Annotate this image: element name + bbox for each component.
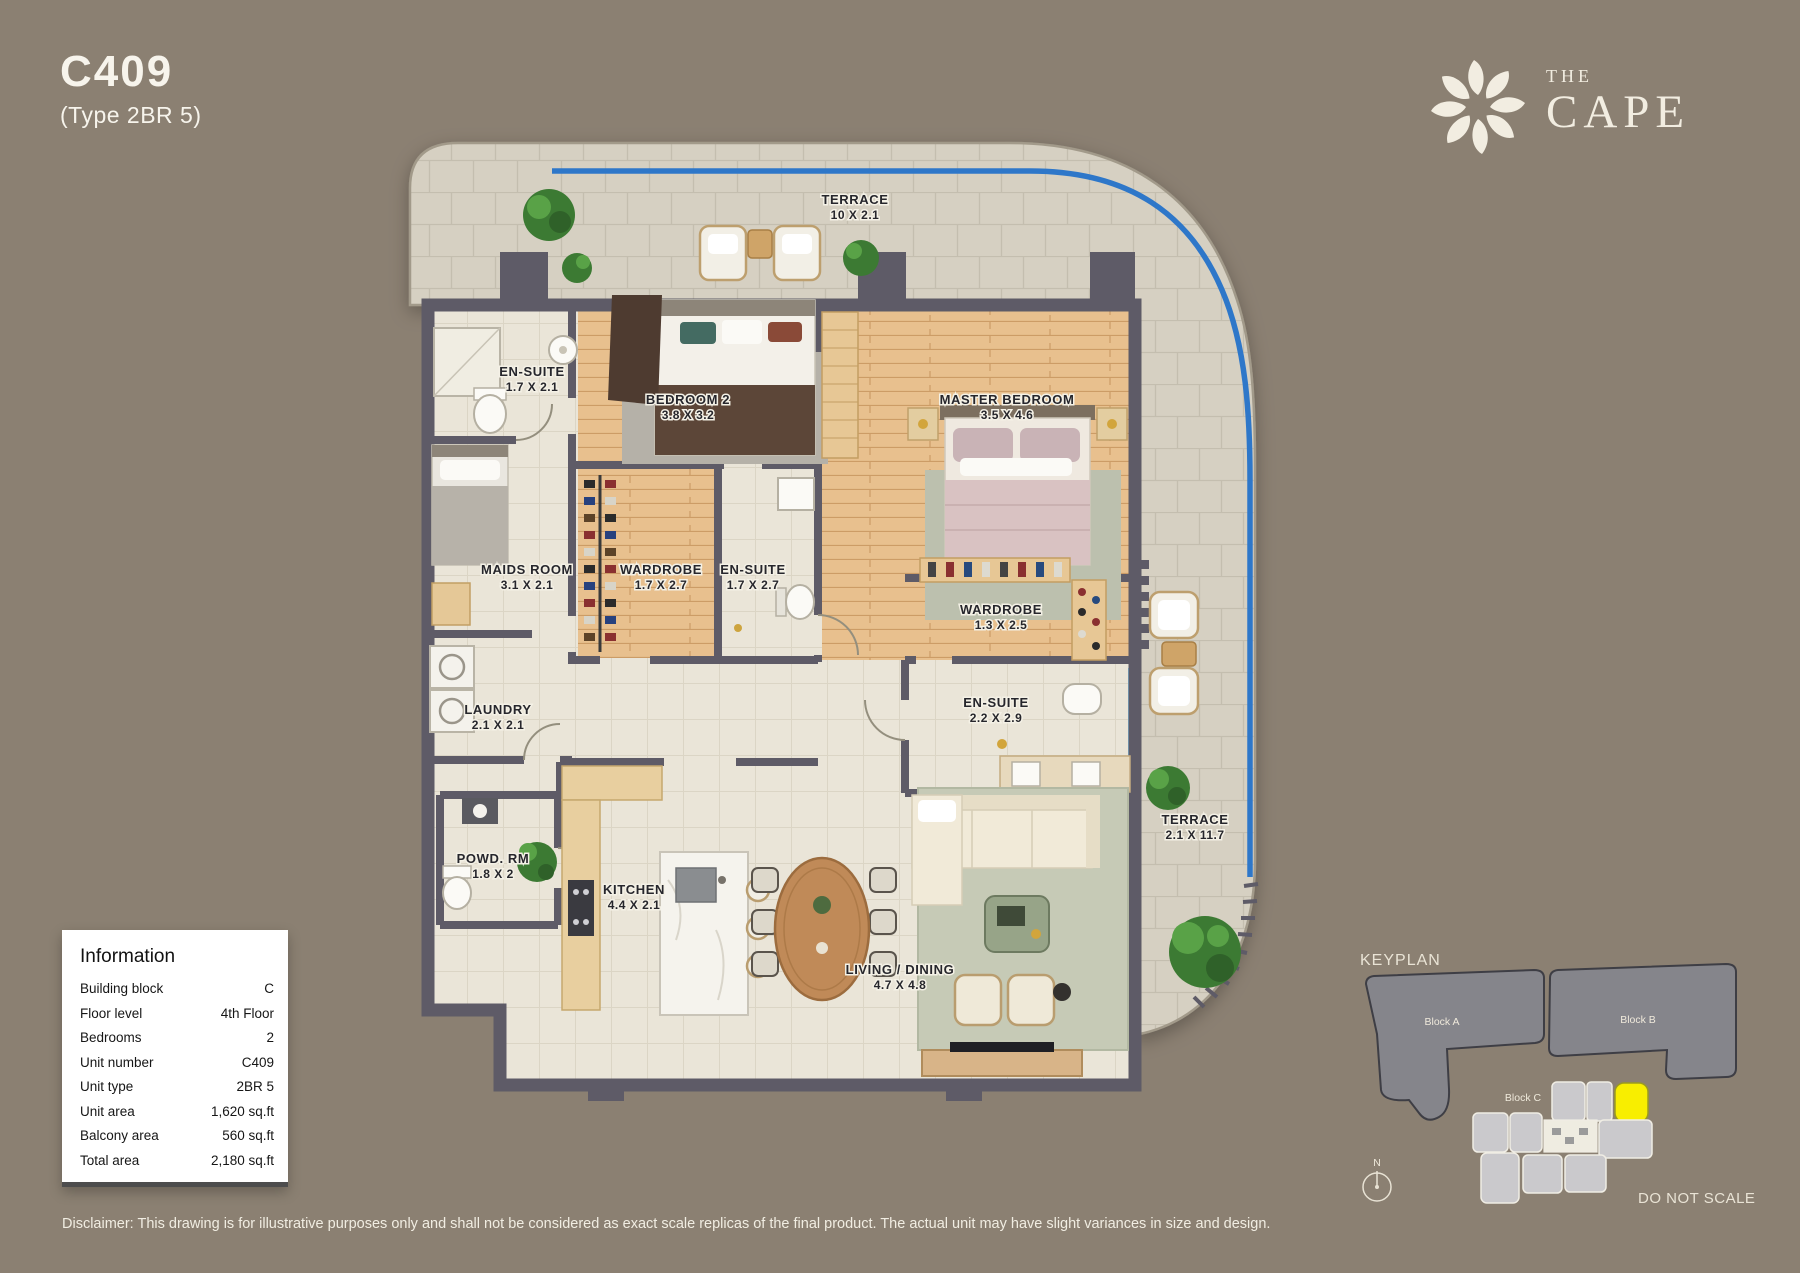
room-label-ensuite1: EN-SUITE [499, 364, 564, 379]
brand-name: THE CAPE [1546, 52, 1690, 136]
room-label-powder-room: POWD. RM [457, 851, 530, 866]
svg-text:4.4 X 2.1: 4.4 X 2.1 [608, 898, 661, 912]
keyplan-highlighted-unit [1615, 1083, 1648, 1122]
brand-name-cape: CAPE [1546, 89, 1690, 136]
floorplan-page: TERRACE 10 X 2.1 EN-SUITE 1.7 X 2.1 BEDR… [0, 0, 1800, 1273]
keyplan-block-c: Block C [1473, 1082, 1652, 1203]
svg-text:2.1 X 11.7: 2.1 X 11.7 [1165, 828, 1224, 842]
room-label-ensuite2: EN-SUITE [720, 562, 785, 577]
svg-text:1.7 X 2.1: 1.7 X 2.1 [506, 380, 559, 394]
svg-text:Block C: Block C [1505, 1092, 1542, 1104]
room-label-living-dining: LIVING / DINING [846, 962, 955, 977]
living-room-furniture [912, 788, 1128, 1076]
compass-icon [1363, 1171, 1391, 1201]
svg-text:1.7 X 2.7: 1.7 X 2.7 [727, 578, 780, 592]
information-title: Information [80, 946, 274, 968]
info-row-total-area: Total area 2,180 sq.ft [80, 1153, 274, 1168]
room-label-bedroom2: BEDROOM 2 [646, 392, 730, 407]
svg-text:3.5 X 4.6: 3.5 X 4.6 [981, 408, 1034, 422]
brand-logo: THE CAPE [1428, 52, 1690, 162]
wall-pier [1090, 252, 1135, 305]
room-label-master-bedroom: MASTER BEDROOM [940, 392, 1075, 407]
info-row-bedrooms: Bedrooms 2 [80, 1030, 274, 1045]
info-row-unit-number: Unit number C409 [80, 1055, 274, 1070]
room-label-wardrobe1: WARDROBE [620, 562, 702, 577]
keyplan-block-b: Block B [1549, 964, 1736, 1079]
svg-text:1.7 X 2.7: 1.7 X 2.7 [635, 578, 688, 592]
info-row-unit-type: Unit type 2BR 5 [80, 1079, 274, 1094]
room-label-terrace-right: TERRACE [1161, 812, 1228, 827]
brand-name-the: THE [1546, 66, 1690, 87]
unit-type-subtitle: (Type 2BR 5) [60, 102, 202, 129]
room-label-kitchen: KITCHEN [603, 882, 665, 897]
info-row-unit-area: Unit area 1,620 sq.ft [80, 1104, 274, 1119]
svg-text:Block B: Block B [1620, 1014, 1656, 1026]
keyplan: KEYPLAN Block A Block B [1360, 952, 1755, 1207]
info-row-balcony-area: Balcony area 560 sq.ft [80, 1128, 274, 1143]
info-row-building-block: Building block C [80, 981, 274, 996]
svg-text:4.7 X 4.8: 4.7 X 4.8 [874, 978, 927, 992]
svg-text:10 X 2.1: 10 X 2.1 [831, 208, 880, 222]
information-panel: Information Building block C Floor level… [62, 930, 288, 1187]
wall-pier [500, 252, 548, 305]
info-row-floor-level: Floor level 4th Floor [80, 1006, 274, 1021]
wall-nub [588, 1085, 624, 1101]
room-label-terrace-top: TERRACE [821, 192, 888, 207]
room-label-wardrobe2: WARDROBE [960, 602, 1042, 617]
disclaimer-text: Disclaimer: This drawing is for illustra… [62, 1216, 1322, 1232]
svg-text:2.1 X 2.1: 2.1 X 2.1 [472, 718, 525, 732]
do-not-scale-note: DO NOT SCALE [1638, 1190, 1755, 1207]
room-label-maids-room: MAIDS ROOM [481, 562, 573, 577]
svg-text:3.1 X 2.1: 3.1 X 2.1 [501, 578, 554, 592]
room-label-ensuite3: EN-SUITE [963, 695, 1028, 710]
svg-text:2.2 X 2.9: 2.2 X 2.9 [970, 711, 1023, 725]
laundry-machines [430, 646, 474, 732]
svg-text:3.8 X 3.2: 3.8 X 3.2 [662, 408, 715, 422]
unit-code-title: C409 [60, 50, 202, 94]
svg-text:1.8 X 2: 1.8 X 2 [472, 867, 514, 881]
wall-nub [946, 1085, 982, 1101]
svg-text:1.3 X 2.5: 1.3 X 2.5 [975, 618, 1028, 632]
keyplan-title: KEYPLAN [1360, 952, 1441, 969]
header: C409 (Type 2BR 5) [60, 50, 202, 129]
svg-text:Block A: Block A [1424, 1016, 1459, 1028]
brand-flower-icon [1428, 52, 1528, 162]
compass-n-label: N [1373, 1157, 1381, 1169]
room-label-laundry: LAUNDRY [464, 702, 531, 717]
